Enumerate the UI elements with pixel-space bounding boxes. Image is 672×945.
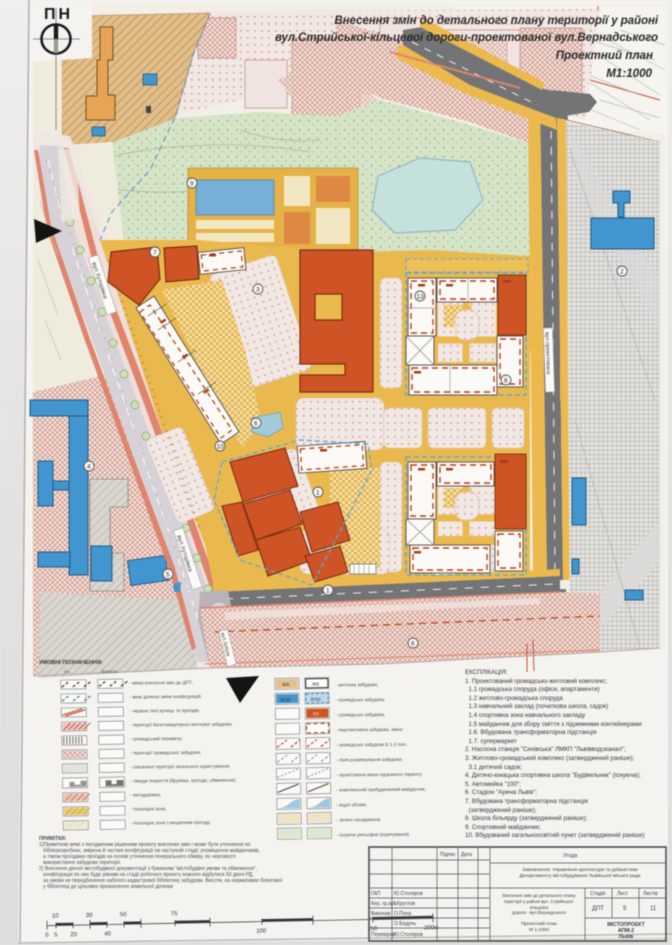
- svg-text:О.Пона: О.Пона: [394, 911, 411, 917]
- svg-text:11: 11: [650, 906, 657, 912]
- svg-text:ДПТ: ДПТ: [592, 906, 604, 912]
- svg-text:7: 7: [153, 250, 157, 257]
- svg-text:10: 10: [52, 913, 59, 919]
- svg-text:ПН: ПН: [44, 6, 73, 23]
- svg-text:40: 40: [104, 931, 111, 937]
- svg-text:Угода: Угода: [563, 853, 578, 859]
- svg-text:5: 5: [166, 572, 170, 579]
- svg-text:ЗОШ: ЗОШ: [280, 697, 291, 702]
- svg-text:ЗОШ: ЗОШ: [310, 697, 321, 702]
- svg-text:10: 10: [217, 444, 225, 451]
- svg-text:О.Бадунь: О.Бадунь: [394, 921, 417, 927]
- svg-text:Кер. гр.арх: Кер. гр.арх: [371, 901, 397, 907]
- svg-text:75: 75: [171, 911, 178, 917]
- svg-text:2: 2: [620, 269, 624, 276]
- svg-text:1: 1: [316, 490, 320, 497]
- svg-text:Дата: Дата: [461, 852, 472, 858]
- svg-text:ЖК: ЖК: [312, 682, 320, 688]
- svg-text:Ю.Столяров: Ю.Столяров: [394, 932, 423, 938]
- svg-text:20: 20: [70, 932, 77, 938]
- svg-text:ЖК: ЖК: [282, 682, 290, 688]
- svg-text:6: 6: [411, 641, 415, 648]
- svg-text:вул.Стрийської-кільцевої дорог: вул.Стрийської-кільцевої дороги-проектов…: [275, 31, 658, 44]
- svg-text:Проектний план: Проектний план: [556, 49, 653, 62]
- svg-text:8: 8: [504, 378, 508, 385]
- svg-text:9: 9: [190, 181, 194, 188]
- svg-text:Перевірив: Перевірив: [371, 932, 395, 938]
- svg-text:Листів: Листів: [643, 891, 658, 897]
- svg-text:ГАП: ГАП: [371, 891, 381, 897]
- svg-text:ТП: ТП: [312, 712, 318, 717]
- svg-text:М1:1000: М1:1000: [606, 67, 652, 80]
- svg-text:50: 50: [120, 912, 127, 918]
- svg-text:4: 4: [87, 464, 91, 471]
- svg-text:100: 100: [256, 928, 267, 934]
- svg-text:13: 13: [417, 294, 425, 301]
- svg-text:Стадія: Стадія: [590, 891, 606, 897]
- svg-text:І.Круглов: І.Круглов: [394, 901, 415, 907]
- svg-text:Лист: Лист: [617, 891, 629, 897]
- svg-text:Підпис: Підпис: [440, 852, 456, 858]
- svg-text:30: 30: [86, 913, 93, 919]
- svg-text:6: 6: [254, 421, 258, 428]
- svg-text:Ю.Столяров: Ю.Столяров: [394, 891, 423, 897]
- svg-text:Внесення змін до детального пл: Внесення змін до детального плану терито…: [334, 14, 658, 27]
- svg-text:3: 3: [256, 287, 260, 294]
- svg-text:Виконав: Виконав: [371, 911, 391, 917]
- svg-text:1: 1: [326, 588, 330, 595]
